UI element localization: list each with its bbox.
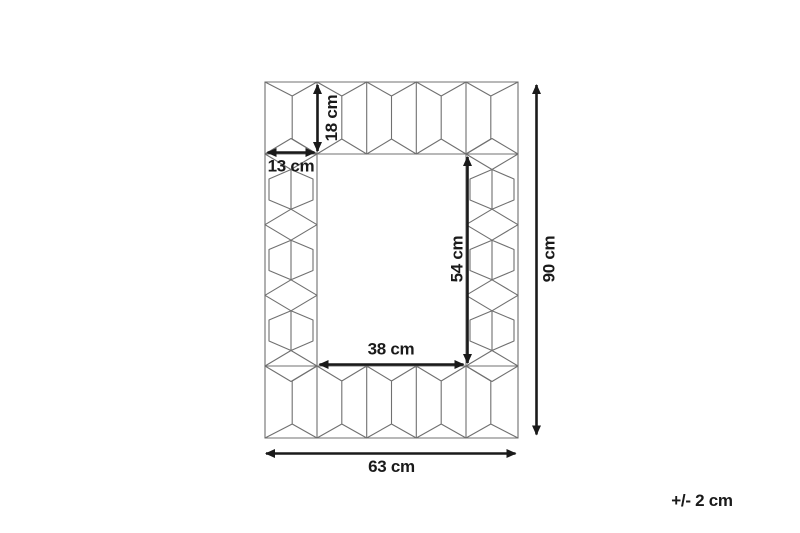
dim-outer-width: 63 cm	[266, 454, 516, 477]
dim-label-13cm: 13 cm	[268, 156, 315, 175]
dim-inner-width: 38 cm	[320, 340, 464, 365]
frame-bottom-band-facets	[265, 366, 518, 438]
tolerance-note: +/- 2 cm	[671, 491, 733, 510]
dim-frame-height-top: 18 cm	[318, 85, 341, 151]
dim-label-18cm: 18 cm	[322, 94, 341, 141]
frame-side-gem-facets	[269, 170, 514, 351]
dim-label-54cm: 54 cm	[447, 235, 466, 282]
frame-top-band-facets	[265, 82, 518, 154]
diagram-canvas: 18 cm 13 cm 54 cm 38 cm 90 cm 63 cm	[0, 0, 800, 533]
dim-label-38cm: 38 cm	[368, 340, 415, 359]
dim-label-63cm: 63 cm	[368, 457, 415, 476]
dim-label-90cm: 90 cm	[539, 235, 558, 282]
mirror-dimension-diagram: 18 cm 13 cm 54 cm 38 cm 90 cm 63 cm	[0, 0, 800, 533]
dim-frame-width-side: 13 cm	[268, 153, 315, 176]
dim-outer-height: 90 cm	[537, 85, 559, 435]
dim-inner-height: 54 cm	[447, 157, 467, 363]
dimension-annotations: 18 cm 13 cm 54 cm 38 cm 90 cm 63 cm	[266, 85, 558, 476]
mirror-frame-drawing	[265, 82, 518, 438]
